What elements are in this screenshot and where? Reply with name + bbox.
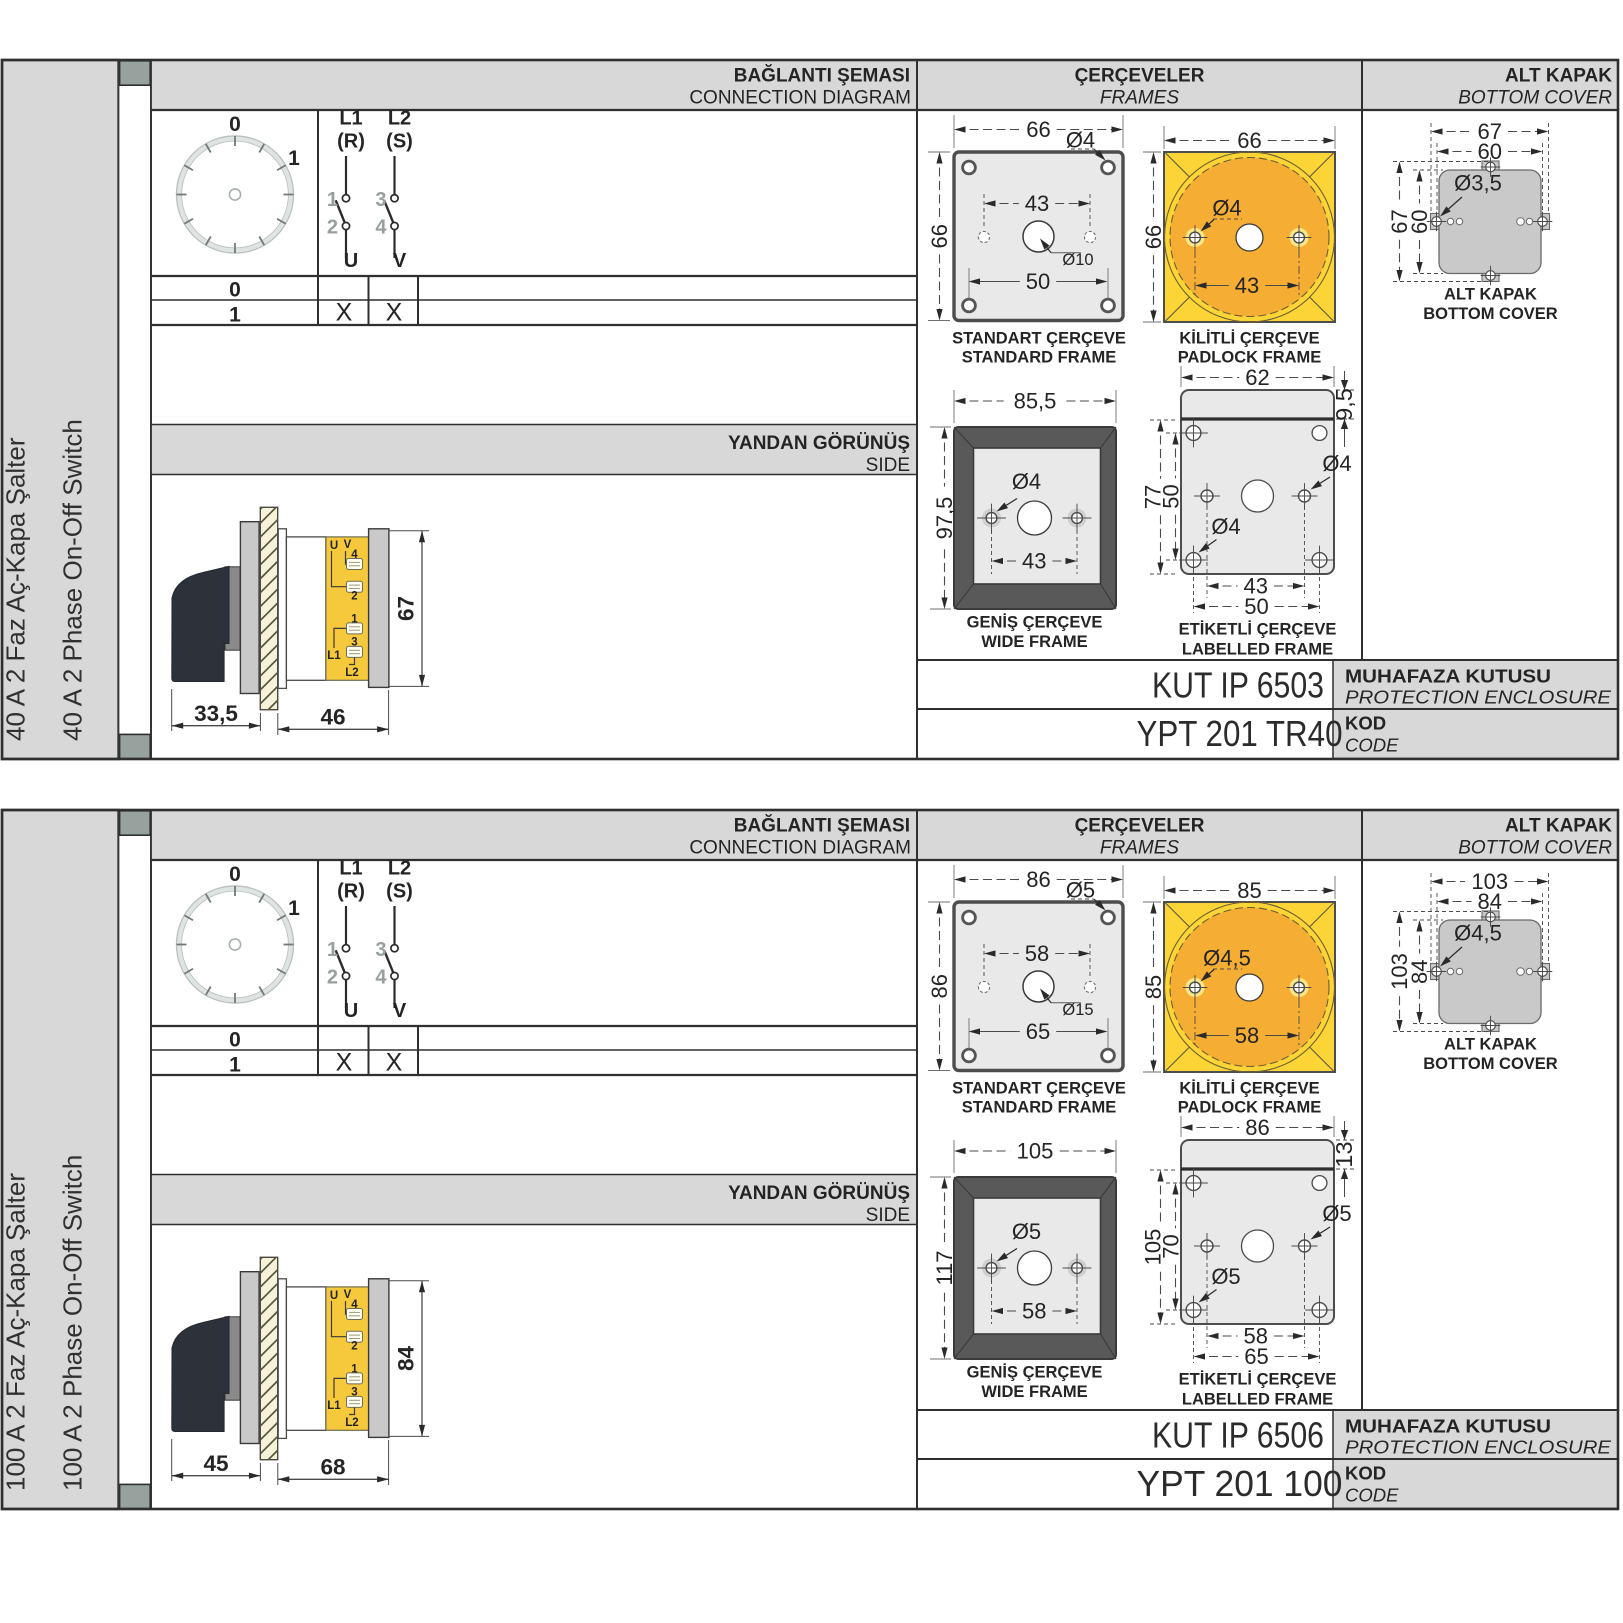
svg-text:46: 46	[320, 705, 345, 730]
svg-text:ÇERÇEVELER: ÇERÇEVELER	[1075, 65, 1205, 86]
svg-text:100 A 2 Phase On-Off Switch: 100 A 2 Phase On-Off Switch	[58, 1155, 88, 1491]
svg-text:40 A 2 Faz Aç-Kapa Şalter: 40 A 2 Faz Aç-Kapa Şalter	[1, 437, 31, 741]
svg-text:58: 58	[1022, 1299, 1046, 1324]
svg-text:67: 67	[394, 596, 419, 621]
svg-text:PROTECTION ENCLOSURE: PROTECTION ENCLOSURE	[1345, 687, 1612, 708]
svg-text:SIDE: SIDE	[866, 1205, 910, 1226]
svg-text:KUT IP 6506: KUT IP 6506	[1152, 1414, 1324, 1455]
svg-text:45: 45	[203, 1451, 228, 1476]
svg-text:ALT KAPAK: ALT KAPAK	[1444, 1036, 1537, 1054]
svg-text:GENİŞ ÇERÇEVE: GENİŞ ÇERÇEVE	[967, 614, 1103, 632]
svg-text:1: 1	[288, 897, 300, 920]
svg-text:2: 2	[327, 217, 338, 239]
svg-text:BAĞLANTI ŞEMASI: BAĞLANTI ŞEMASI	[734, 814, 910, 836]
svg-text:43: 43	[1025, 191, 1049, 216]
svg-text:85,5: 85,5	[1014, 389, 1057, 414]
svg-text:V: V	[393, 250, 407, 272]
svg-text:9,5: 9,5	[1331, 388, 1357, 421]
svg-text:66: 66	[1026, 117, 1050, 142]
svg-text:86: 86	[1245, 1115, 1269, 1140]
svg-text:STANDART ÇERÇEVE: STANDART ÇERÇEVE	[952, 1080, 1126, 1098]
svg-text:84: 84	[1407, 960, 1432, 984]
svg-text:STANDART ÇERÇEVE: STANDART ÇERÇEVE	[952, 330, 1126, 348]
svg-text:2: 2	[351, 591, 357, 603]
svg-text:Ø10: Ø10	[1062, 251, 1093, 269]
svg-text:L2: L2	[388, 858, 411, 880]
svg-text:Ø4: Ø4	[1212, 196, 1241, 221]
svg-text:Ø5: Ø5	[1322, 1201, 1351, 1226]
svg-text:84: 84	[394, 1346, 419, 1372]
svg-text:L2: L2	[345, 667, 358, 679]
svg-text:50: 50	[1026, 269, 1050, 294]
svg-text:2: 2	[351, 1341, 357, 1353]
svg-text:CODE: CODE	[1345, 735, 1399, 756]
svg-text:STANDARD FRAME: STANDARD FRAME	[962, 349, 1117, 367]
svg-text:60: 60	[1407, 210, 1432, 234]
svg-text:Ø4: Ø4	[1322, 451, 1351, 476]
svg-text:WIDE FRAME: WIDE FRAME	[981, 633, 1087, 651]
svg-text:X: X	[386, 299, 403, 327]
svg-text:1: 1	[229, 304, 241, 327]
svg-text:65: 65	[1244, 1344, 1268, 1369]
svg-text:BOTTOM COVER: BOTTOM COVER	[1458, 838, 1612, 859]
svg-text:2: 2	[327, 967, 338, 989]
svg-text:CODE: CODE	[1345, 1485, 1399, 1506]
svg-text:97,5: 97,5	[932, 497, 957, 540]
svg-text:ALT KAPAK: ALT KAPAK	[1505, 815, 1612, 836]
svg-text:Ø4,5: Ø4,5	[1454, 921, 1502, 946]
svg-text:68: 68	[320, 1455, 345, 1480]
svg-text:0: 0	[229, 279, 241, 302]
svg-text:60: 60	[1478, 139, 1502, 164]
svg-text:Ø4,5: Ø4,5	[1203, 946, 1251, 971]
svg-text:43: 43	[1235, 273, 1259, 298]
svg-text:58: 58	[1235, 1023, 1259, 1048]
svg-text:13: 13	[1331, 1141, 1357, 1167]
svg-text:CONNECTION DIAGRAM: CONNECTION DIAGRAM	[689, 88, 911, 109]
svg-text:(S): (S)	[386, 131, 413, 153]
svg-text:(S): (S)	[386, 881, 413, 903]
svg-text:KOD: KOD	[1345, 1463, 1386, 1484]
svg-text:ALT KAPAK: ALT KAPAK	[1444, 286, 1537, 304]
svg-text:66: 66	[1237, 128, 1261, 153]
svg-text:YPT 201 100: YPT 201 100	[1137, 1463, 1343, 1504]
svg-text:L1: L1	[339, 108, 362, 130]
svg-text:43: 43	[1022, 549, 1046, 574]
svg-text:MUHAFAZA KUTUSU: MUHAFAZA KUTUSU	[1345, 1416, 1551, 1437]
svg-text:62: 62	[1245, 365, 1269, 390]
svg-text:SIDE: SIDE	[866, 455, 910, 476]
svg-text:ÇERÇEVELER: ÇERÇEVELER	[1075, 815, 1205, 836]
svg-text:3: 3	[375, 939, 386, 961]
svg-text:3: 3	[375, 189, 386, 211]
svg-text:PADLOCK FRAME: PADLOCK FRAME	[1178, 1099, 1322, 1117]
svg-text:(R): (R)	[337, 131, 365, 153]
svg-text:YANDAN GÖRÜNÜŞ: YANDAN GÖRÜNÜŞ	[728, 1183, 910, 1204]
svg-text:X: X	[386, 1049, 403, 1077]
svg-text:ALT KAPAK: ALT KAPAK	[1505, 65, 1612, 86]
svg-text:V: V	[393, 1000, 407, 1022]
svg-text:BAĞLANTI ŞEMASI: BAĞLANTI ŞEMASI	[734, 64, 910, 86]
svg-text:KOD: KOD	[1345, 713, 1386, 734]
svg-text:84: 84	[1478, 889, 1502, 914]
svg-text:ETİKETLİ ÇERÇEVE: ETİKETLİ ÇERÇEVE	[1179, 1371, 1337, 1389]
svg-text:1: 1	[288, 147, 300, 170]
svg-text:86: 86	[927, 974, 952, 998]
svg-text:L2: L2	[388, 108, 411, 130]
svg-text:40 A 2 Phase On-Off Switch: 40 A 2 Phase On-Off Switch	[58, 419, 88, 741]
svg-text:Ø4: Ø4	[1211, 514, 1240, 539]
svg-text:33,5: 33,5	[194, 701, 238, 726]
svg-text:58: 58	[1025, 941, 1049, 966]
svg-text:X: X	[336, 299, 353, 327]
svg-text:ETİKETLİ ÇERÇEVE: ETİKETLİ ÇERÇEVE	[1179, 621, 1337, 639]
svg-text:BOTTOM COVER: BOTTOM COVER	[1423, 1055, 1558, 1073]
svg-text:U: U	[344, 250, 358, 272]
svg-text:0: 0	[229, 1029, 241, 1052]
svg-text:GENİŞ ÇERÇEVE: GENİŞ ÇERÇEVE	[967, 1364, 1103, 1382]
svg-text:U: U	[344, 1000, 358, 1022]
svg-text:L2: L2	[345, 1417, 358, 1429]
svg-text:105: 105	[1017, 1139, 1054, 1164]
svg-text:L1: L1	[327, 650, 341, 662]
svg-text:1: 1	[327, 189, 338, 211]
svg-text:KİLİTLİ ÇERÇEVE: KİLİTLİ ÇERÇEVE	[1179, 1080, 1319, 1098]
svg-text:4: 4	[375, 217, 387, 239]
svg-text:FRAMES: FRAMES	[1100, 88, 1180, 109]
svg-text:50: 50	[1159, 484, 1184, 508]
svg-text:66: 66	[927, 224, 952, 248]
svg-text:BOTTOM COVER: BOTTOM COVER	[1423, 305, 1558, 323]
svg-text:WIDE FRAME: WIDE FRAME	[981, 1383, 1087, 1401]
svg-text:KİLİTLİ ÇERÇEVE: KİLİTLİ ÇERÇEVE	[1179, 330, 1319, 348]
svg-text:CONNECTION DIAGRAM: CONNECTION DIAGRAM	[689, 838, 911, 859]
svg-text:U: U	[330, 540, 338, 552]
svg-text:BOTTOM COVER: BOTTOM COVER	[1458, 88, 1612, 109]
svg-text:LABELLED FRAME: LABELLED FRAME	[1182, 641, 1333, 659]
svg-text:(R): (R)	[337, 881, 365, 903]
svg-text:1: 1	[229, 1054, 241, 1077]
svg-text:0: 0	[229, 113, 241, 136]
svg-text:L1: L1	[339, 858, 362, 880]
svg-text:LABELLED FRAME: LABELLED FRAME	[1182, 1391, 1333, 1409]
svg-text:85: 85	[1237, 878, 1261, 903]
svg-text:YPT 201 TR40: YPT 201 TR40	[1137, 713, 1343, 754]
svg-text:70: 70	[1159, 1234, 1184, 1258]
svg-text:Ø5: Ø5	[1012, 1219, 1041, 1244]
svg-text:Ø5: Ø5	[1211, 1264, 1240, 1289]
svg-text:65: 65	[1026, 1019, 1050, 1044]
svg-text:MUHAFAZA KUTUSU: MUHAFAZA KUTUSU	[1345, 666, 1551, 687]
svg-text:Ø3,5: Ø3,5	[1454, 171, 1502, 196]
svg-text:50: 50	[1244, 594, 1268, 619]
svg-text:U: U	[330, 1290, 338, 1302]
svg-text:66: 66	[1141, 225, 1166, 249]
svg-text:KUT IP 6503: KUT IP 6503	[1152, 664, 1324, 705]
svg-text:0: 0	[229, 863, 241, 886]
svg-text:Ø4: Ø4	[1012, 469, 1041, 494]
svg-text:85: 85	[1141, 975, 1166, 999]
svg-text:FRAMES: FRAMES	[1100, 838, 1180, 859]
svg-text:PROTECTION ENCLOSURE: PROTECTION ENCLOSURE	[1345, 1437, 1612, 1458]
svg-text:PADLOCK FRAME: PADLOCK FRAME	[1178, 349, 1322, 367]
svg-text:100 A 2 Faz Aç-Kapa Şalter: 100 A 2 Faz Aç-Kapa Şalter	[1, 1173, 31, 1491]
svg-text:86: 86	[1026, 867, 1050, 892]
svg-text:117: 117	[932, 1250, 957, 1285]
svg-text:YANDAN GÖRÜNÜŞ: YANDAN GÖRÜNÜŞ	[728, 433, 910, 454]
svg-text:L1: L1	[327, 1400, 341, 1412]
svg-text:X: X	[336, 1049, 353, 1077]
svg-text:1: 1	[327, 939, 338, 961]
svg-text:Ø15: Ø15	[1062, 1001, 1093, 1019]
svg-text:STANDARD FRAME: STANDARD FRAME	[962, 1099, 1117, 1117]
svg-text:4: 4	[375, 967, 387, 989]
